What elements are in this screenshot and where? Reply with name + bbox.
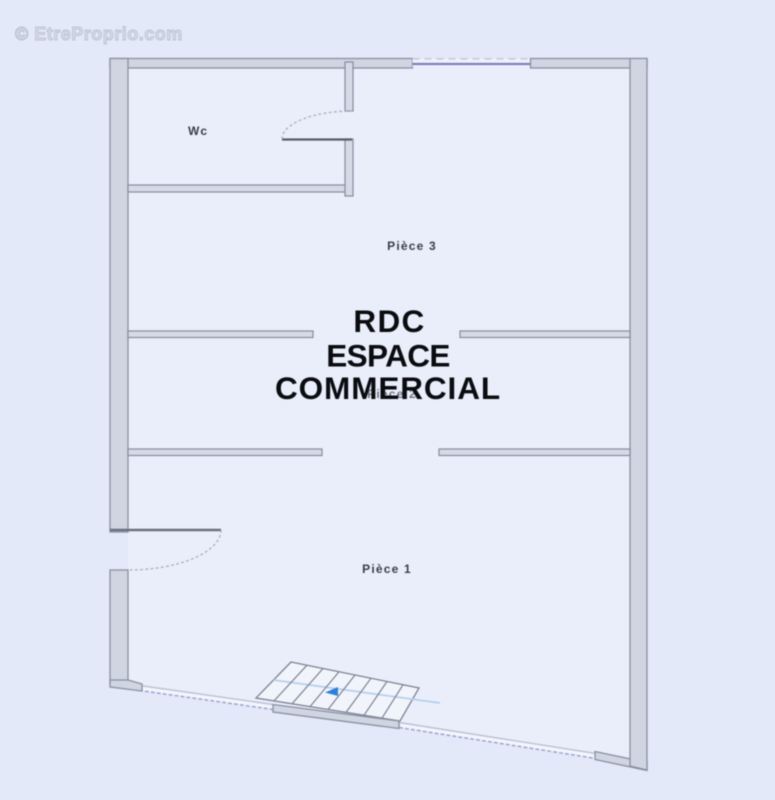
svg-text:COMMERCIAL: COMMERCIAL — [275, 370, 501, 406]
svg-text:Wc: Wc — [188, 124, 208, 138]
svg-text:ESPACE: ESPACE — [326, 338, 450, 374]
svg-text:Pièce 3: Pièce 3 — [387, 239, 437, 253]
svg-text:Pièce 1: Pièce 1 — [362, 562, 412, 576]
svg-text:© EtreProprio.com: © EtreProprio.com — [15, 24, 183, 44]
svg-text:RDC: RDC — [353, 303, 425, 339]
